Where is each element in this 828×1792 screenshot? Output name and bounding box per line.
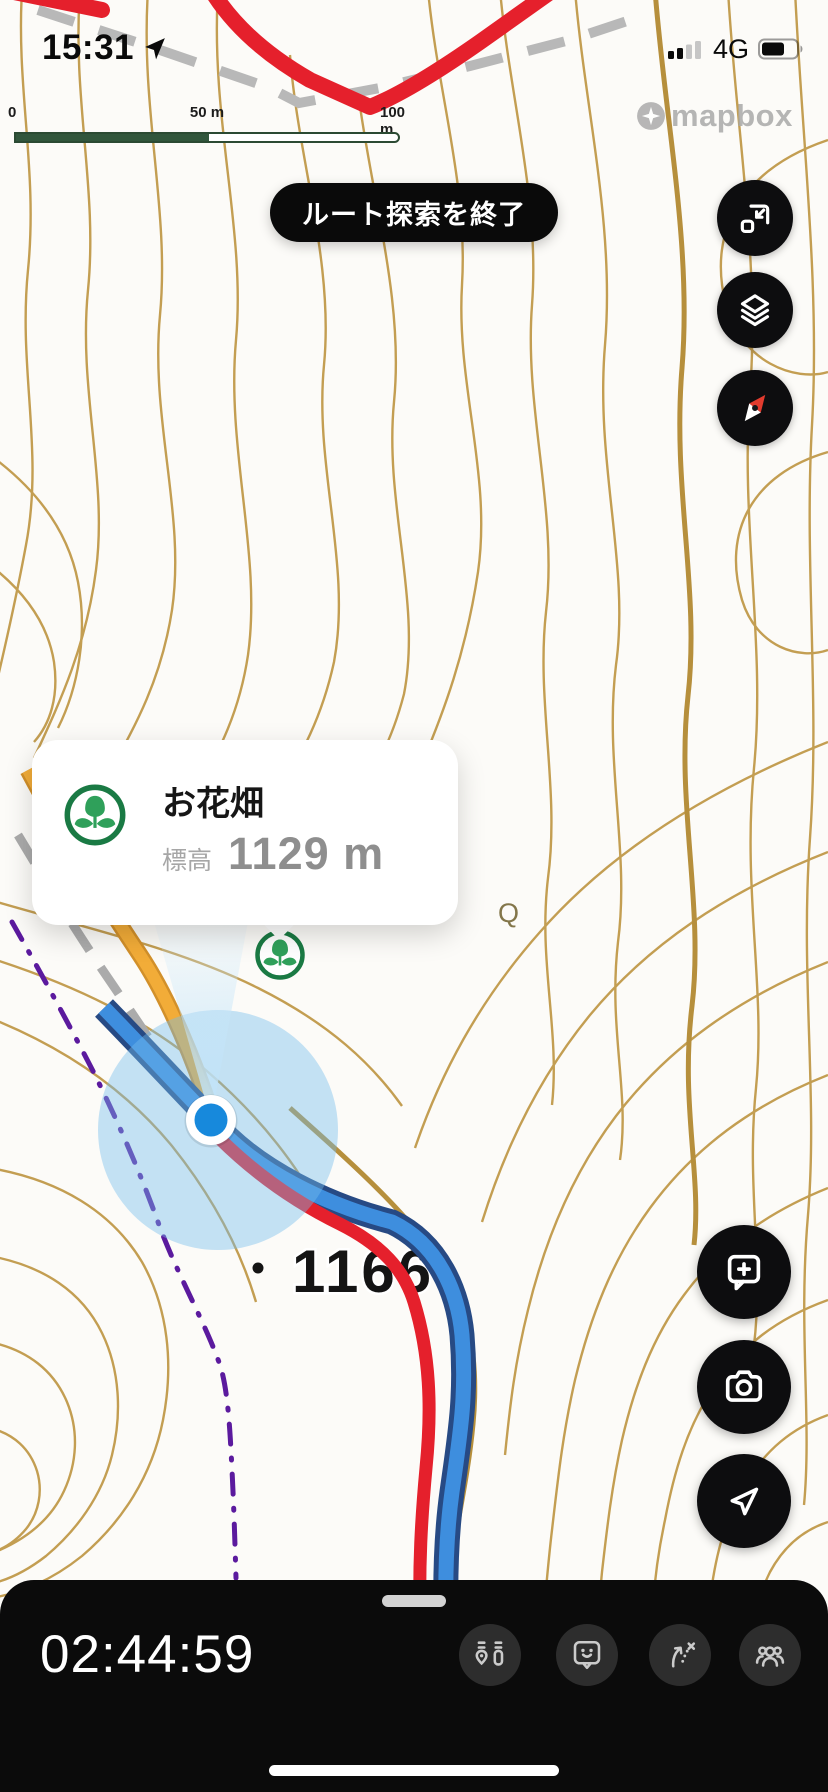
sheet-drag-handle[interactable] — [382, 1595, 446, 1607]
route-exit-icon — [662, 1637, 698, 1673]
add-memo-button[interactable] — [697, 1225, 791, 1319]
add-memo-icon — [721, 1249, 767, 1295]
layers-button[interactable] — [717, 272, 793, 348]
collapse-map-icon — [736, 199, 774, 237]
scale-label-start: 0 — [8, 104, 16, 121]
activity-timer: 02:44:59 — [40, 1624, 254, 1685]
send-icon — [722, 1479, 766, 1523]
bottom-sheet[interactable]: 02:44:59 — [0, 1580, 828, 1792]
poi-card[interactable]: お花畑 標高 1129 m — [32, 740, 458, 925]
vegetation-symbol: Q — [498, 898, 519, 928]
poi-elevation-row: 標高 1129 m — [162, 828, 384, 880]
mapbox-logo-text: mapbox — [671, 98, 793, 134]
mapbox-attribution[interactable]: mapbox — [636, 98, 793, 134]
camera-icon — [721, 1364, 767, 1410]
poi-title: お花畑 — [162, 776, 264, 825]
route-exit-button[interactable] — [649, 1624, 711, 1686]
compass-button[interactable] — [717, 370, 793, 446]
location-dot — [195, 1104, 228, 1137]
scale-bar-fill — [16, 134, 209, 141]
scale-bar-track — [14, 132, 400, 143]
phone-screen: 1166 Q Q — [0, 0, 828, 1792]
elevation-label: 標高 — [162, 841, 212, 877]
mapbox-logo-icon — [636, 101, 666, 131]
scale-labels: 0 50 m 100 m — [0, 104, 440, 128]
memo-reactions-button[interactable] — [556, 1624, 618, 1686]
camera-button[interactable] — [697, 1340, 791, 1434]
memo-reactions-icon — [569, 1637, 605, 1673]
scale-label-mid: 50 m — [190, 104, 224, 121]
compass-icon — [734, 387, 776, 429]
group-members-button[interactable] — [739, 1624, 801, 1686]
home-indicator[interactable] — [269, 1765, 559, 1776]
share-location-button[interactable] — [697, 1454, 791, 1548]
activity-stats-button[interactable] — [459, 1624, 521, 1686]
collapse-map-button[interactable] — [717, 180, 793, 256]
end-route-search-button[interactable]: ルート探索を終了 — [270, 183, 558, 242]
scale-bar: 0 50 m 100 m — [0, 104, 440, 143]
layers-icon — [735, 290, 775, 330]
elevation-value: 1129 m — [228, 828, 384, 880]
spot-elevation-dot — [253, 1263, 264, 1274]
group-members-icon — [752, 1637, 788, 1673]
activity-stats-icon — [472, 1637, 508, 1673]
flower-card-icon — [63, 783, 127, 847]
end-route-search-label: ルート探索を終了 — [302, 193, 526, 232]
